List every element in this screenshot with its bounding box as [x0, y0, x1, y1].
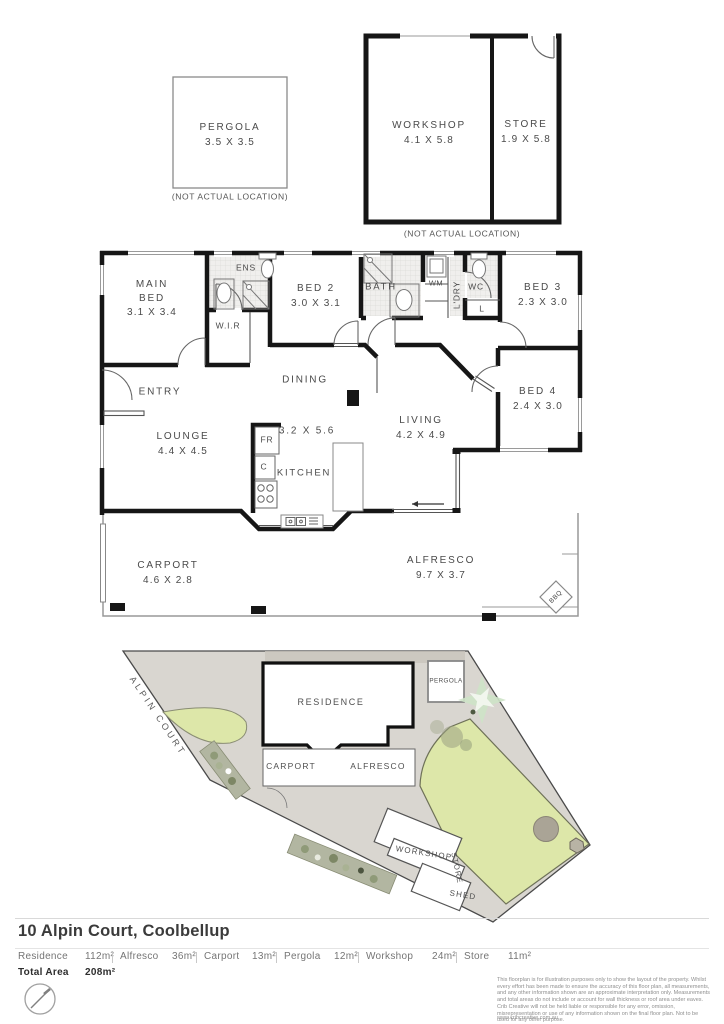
- area-value-residence: 112m²: [85, 951, 114, 962]
- room-entry: ENTRY: [139, 385, 182, 400]
- workshop-inset-note: (NOT ACTUAL LOCATION): [404, 227, 520, 242]
- site-pergola-label: PERGOLA: [429, 678, 462, 685]
- room-main-bed: MAIN BED 3.1 X 3.4: [127, 278, 177, 320]
- fridge-label: FR: [261, 433, 274, 448]
- area-value-alfresco: 36m²: [172, 951, 196, 962]
- area-value-pergola: 12m²: [334, 951, 358, 962]
- room-ldry: L'DRY: [450, 281, 465, 309]
- area-label-workshop: Workshop: [366, 951, 413, 962]
- washing-machine-icon: [427, 256, 446, 277]
- area-separator: [276, 952, 277, 963]
- room-bath: BATH: [365, 280, 397, 295]
- pergola-inset-label: PERGOLA 3.5 X 3.5: [200, 120, 261, 150]
- room-kitchen: KITCHEN: [277, 466, 331, 481]
- total-area-label: Total Area: [18, 967, 69, 978]
- area-label-carport: Carport: [204, 951, 239, 962]
- room-wc: WC: [468, 280, 484, 295]
- area-separator: [456, 952, 457, 963]
- room-wir: W.I.R: [216, 319, 241, 334]
- sliding-door-arrow: [412, 501, 444, 507]
- area-value-carport: 13m²: [252, 951, 276, 962]
- site-tree: [534, 817, 559, 842]
- site-carport-label: CARPORT: [266, 761, 316, 771]
- area-separator: [358, 952, 359, 963]
- property-address: 10 Alpin Court, Coolbellup: [18, 922, 230, 941]
- workshop-inset-label: WORKSHOP 4.1 X 5.8: [392, 118, 466, 148]
- island-bench: [333, 443, 363, 511]
- room-carport: CARPORT 4.6 X 2.8: [137, 558, 198, 588]
- area-value-store: 11m²: [508, 951, 531, 962]
- area-value-workshop: 24m²: [432, 951, 456, 962]
- room-bed2: BED 2 3.0 X 3.1: [291, 281, 341, 311]
- area-label-store: Store: [464, 951, 489, 962]
- store-inset-label: STORE 1.9 X 5.8: [501, 117, 551, 147]
- area-separator: [196, 952, 197, 963]
- site-alfresco-label: ALFRESCO: [350, 761, 405, 771]
- area-separator: [112, 952, 113, 963]
- room-lounge: LOUNGE 4.4 X 4.5: [156, 429, 209, 459]
- room-bed3: BED 3 2.3 X 3.0: [518, 280, 568, 310]
- floor-plan-page: PERGOLA 3.5 X 3.5 (NOT ACTUAL LOCATION) …: [0, 0, 724, 1024]
- sink-icon: [281, 515, 323, 528]
- kitchen-dims: 3.2 X 5.6: [279, 424, 335, 439]
- toilet-icon-wc: [471, 253, 487, 278]
- room-dining: DINING: [282, 373, 328, 388]
- floor-plan-drawing: [0, 0, 724, 1024]
- area-label-residence: Residence: [18, 951, 68, 962]
- website-text: www.cribcreative.com.au: [497, 1015, 558, 1021]
- area-label-pergola: Pergola: [284, 951, 321, 962]
- site-plan: [123, 651, 590, 922]
- room-ens: ENS: [236, 261, 256, 276]
- room-linen: L: [479, 302, 485, 317]
- total-area-value: 208m²: [85, 967, 115, 978]
- site-residence-label: RESIDENCE: [298, 697, 365, 707]
- room-living: LIVING 4.2 X 4.9: [396, 413, 446, 443]
- pergola-inset-note: (NOT ACTUAL LOCATION): [172, 190, 288, 205]
- cupboard-label: C: [261, 460, 268, 475]
- room-wm: WM: [429, 276, 443, 291]
- room-bed4: BED 4 2.4 X 3.0: [513, 384, 563, 414]
- area-label-alfresco: Alfresco: [120, 951, 159, 962]
- divider-top: [15, 918, 709, 919]
- compass-icon: [25, 984, 55, 1014]
- stove-icon: [255, 481, 277, 508]
- room-alfresco: ALFRESCO 9.7 X 3.7: [407, 553, 475, 583]
- divider-bottom: [15, 948, 709, 949]
